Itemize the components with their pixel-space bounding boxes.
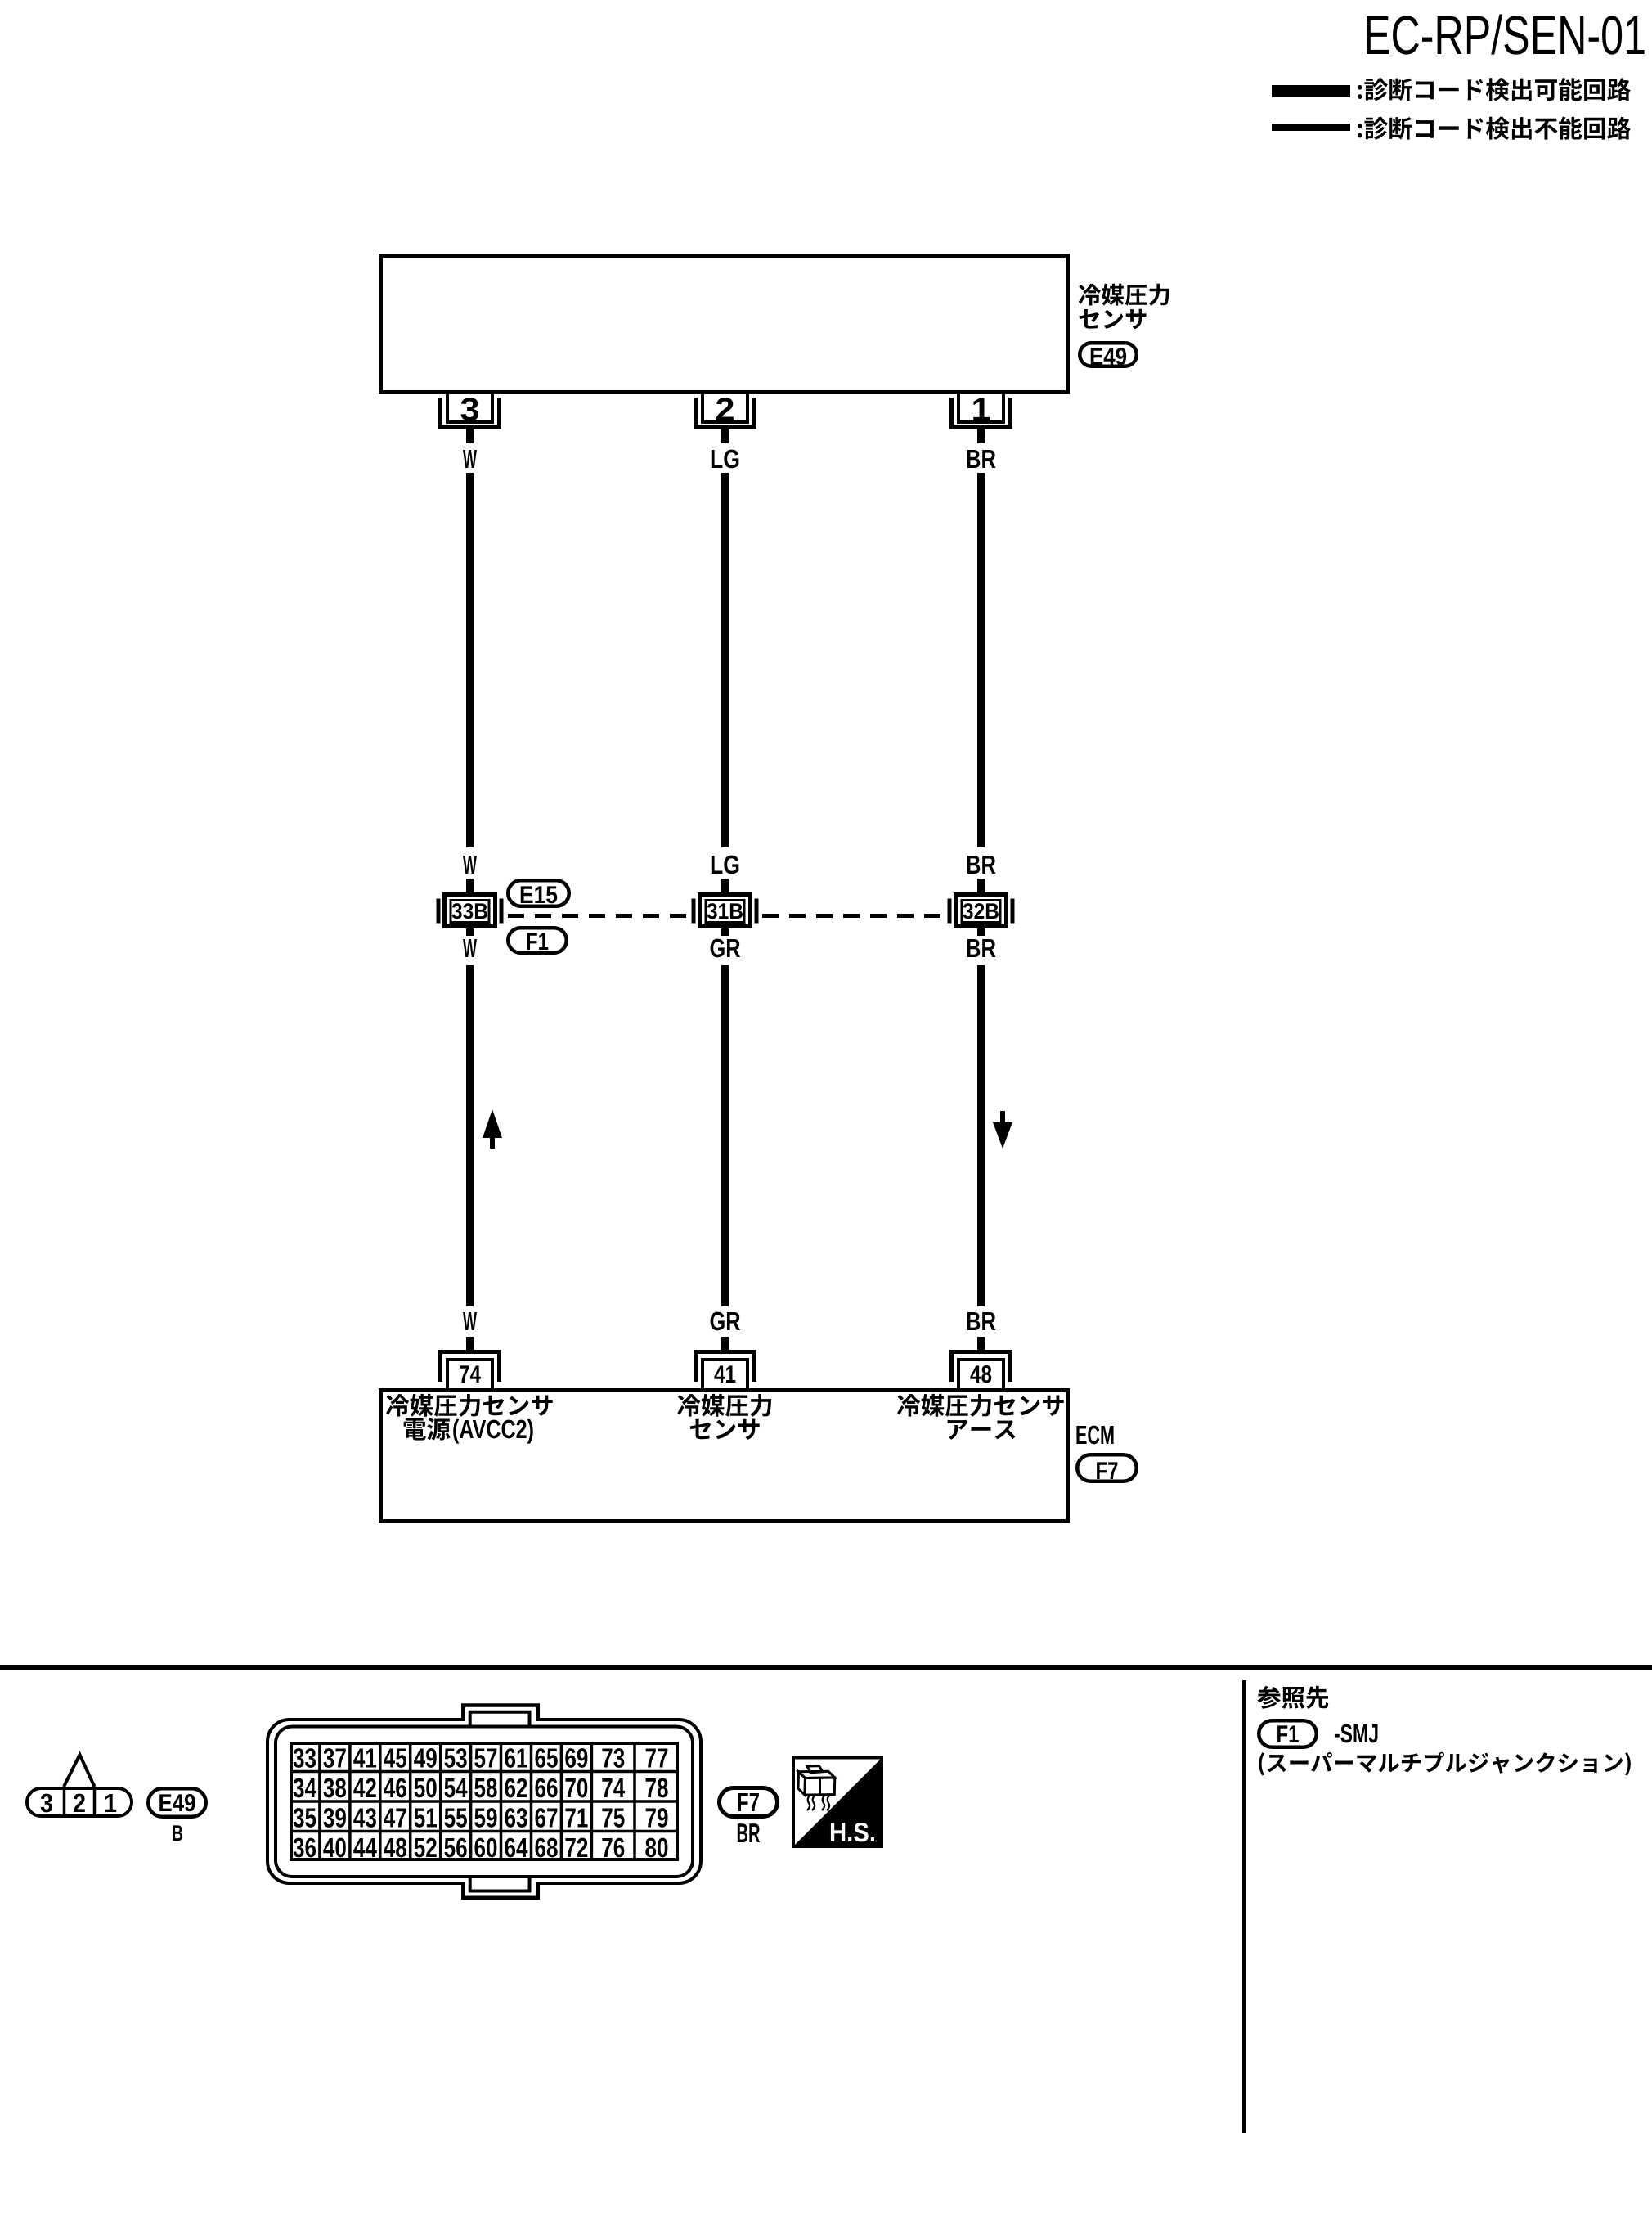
svg-text:41: 41 (353, 1744, 377, 1774)
svg-text:66: 66 (534, 1774, 558, 1804)
svg-text:W: W (463, 1306, 477, 1336)
svg-text:74: 74 (459, 1361, 481, 1388)
svg-text:1: 1 (104, 1788, 117, 1818)
svg-text:48: 48 (970, 1361, 992, 1388)
svg-text:36: 36 (293, 1833, 316, 1864)
svg-text:31B: 31B (707, 899, 743, 924)
svg-text:41: 41 (714, 1361, 736, 1388)
svg-text:-SMJ: -SMJ (1334, 1719, 1379, 1748)
svg-text:32B: 32B (963, 899, 999, 924)
svg-text:BR: BR (966, 850, 996, 879)
svg-text:80: 80 (645, 1833, 669, 1864)
svg-text:71: 71 (564, 1804, 588, 1834)
svg-text:38: 38 (323, 1774, 347, 1804)
svg-text:70: 70 (564, 1774, 588, 1804)
svg-text:46: 46 (384, 1774, 407, 1804)
svg-text:63: 63 (505, 1804, 528, 1834)
svg-text:LG: LG (710, 850, 740, 879)
svg-text:49: 49 (414, 1744, 438, 1774)
svg-text:53: 53 (444, 1744, 468, 1774)
svg-text:ECM: ECM (1075, 1420, 1115, 1450)
svg-text:57: 57 (474, 1744, 498, 1774)
svg-text:3: 3 (460, 392, 480, 428)
svg-text:45: 45 (384, 1744, 407, 1774)
svg-text:2: 2 (73, 1788, 86, 1818)
svg-text:BR: BR (966, 1306, 996, 1336)
svg-text:62: 62 (505, 1774, 528, 1804)
svg-text:F7: F7 (737, 1787, 760, 1817)
svg-text:E15: E15 (519, 882, 558, 909)
svg-text:BR: BR (966, 444, 996, 474)
svg-text:54: 54 (444, 1774, 468, 1804)
svg-text:40: 40 (323, 1833, 347, 1864)
svg-text:52: 52 (414, 1833, 438, 1864)
svg-text:55: 55 (444, 1804, 468, 1834)
svg-text:W: W (463, 850, 477, 879)
svg-text:39: 39 (323, 1804, 347, 1834)
svg-text:60: 60 (474, 1833, 498, 1864)
svg-text:1: 1 (972, 392, 991, 428)
svg-text:48: 48 (384, 1833, 407, 1864)
svg-text:W: W (463, 933, 477, 963)
svg-text:68: 68 (534, 1833, 558, 1864)
svg-text:B: B (172, 1821, 183, 1846)
svg-text:GR: GR (710, 1306, 741, 1336)
svg-text:72: 72 (564, 1833, 588, 1864)
svg-text:75: 75 (601, 1804, 625, 1834)
svg-text:3: 3 (40, 1788, 53, 1818)
svg-text:64: 64 (505, 1833, 528, 1864)
svg-text:69: 69 (564, 1744, 588, 1774)
svg-text:E49: E49 (159, 1790, 196, 1817)
svg-text:50: 50 (414, 1774, 438, 1804)
svg-text:65: 65 (534, 1744, 558, 1774)
svg-text:BR: BR (737, 1818, 761, 1848)
svg-text:77: 77 (645, 1744, 669, 1774)
svg-text:34: 34 (293, 1774, 316, 1804)
svg-text:37: 37 (323, 1744, 347, 1774)
svg-text:(AVCC2): (AVCC2) (452, 1414, 534, 1444)
svg-text:E49: E49 (1089, 344, 1127, 371)
svg-text:33B: 33B (451, 899, 488, 924)
svg-text:76: 76 (601, 1833, 625, 1864)
svg-text:47: 47 (384, 1804, 407, 1834)
svg-text:35: 35 (293, 1804, 316, 1834)
svg-text:61: 61 (505, 1744, 528, 1774)
svg-text:F1: F1 (1277, 1721, 1300, 1748)
svg-text:78: 78 (645, 1774, 669, 1804)
svg-text:H.S.: H.S. (829, 1817, 876, 1847)
svg-text:33: 33 (293, 1744, 316, 1774)
svg-text:W: W (463, 444, 477, 474)
svg-text:F1: F1 (526, 928, 549, 955)
svg-text:58: 58 (474, 1774, 498, 1804)
svg-text:74: 74 (601, 1774, 625, 1804)
svg-text:67: 67 (534, 1804, 558, 1834)
svg-text:EC-RP/SEN-01: EC-RP/SEN-01 (1363, 5, 1646, 66)
svg-text:79: 79 (645, 1804, 669, 1834)
svg-text:56: 56 (444, 1833, 468, 1864)
svg-text:44: 44 (353, 1833, 377, 1864)
svg-text:2: 2 (716, 392, 735, 428)
svg-text:59: 59 (474, 1804, 498, 1834)
svg-text:GR: GR (710, 933, 741, 963)
svg-text:42: 42 (353, 1774, 377, 1804)
svg-text:51: 51 (414, 1804, 438, 1834)
svg-text:73: 73 (601, 1744, 625, 1774)
svg-text:43: 43 (353, 1804, 377, 1834)
svg-text:F7: F7 (1096, 1458, 1119, 1485)
svg-text:LG: LG (710, 444, 740, 474)
svg-text:BR: BR (966, 933, 996, 963)
